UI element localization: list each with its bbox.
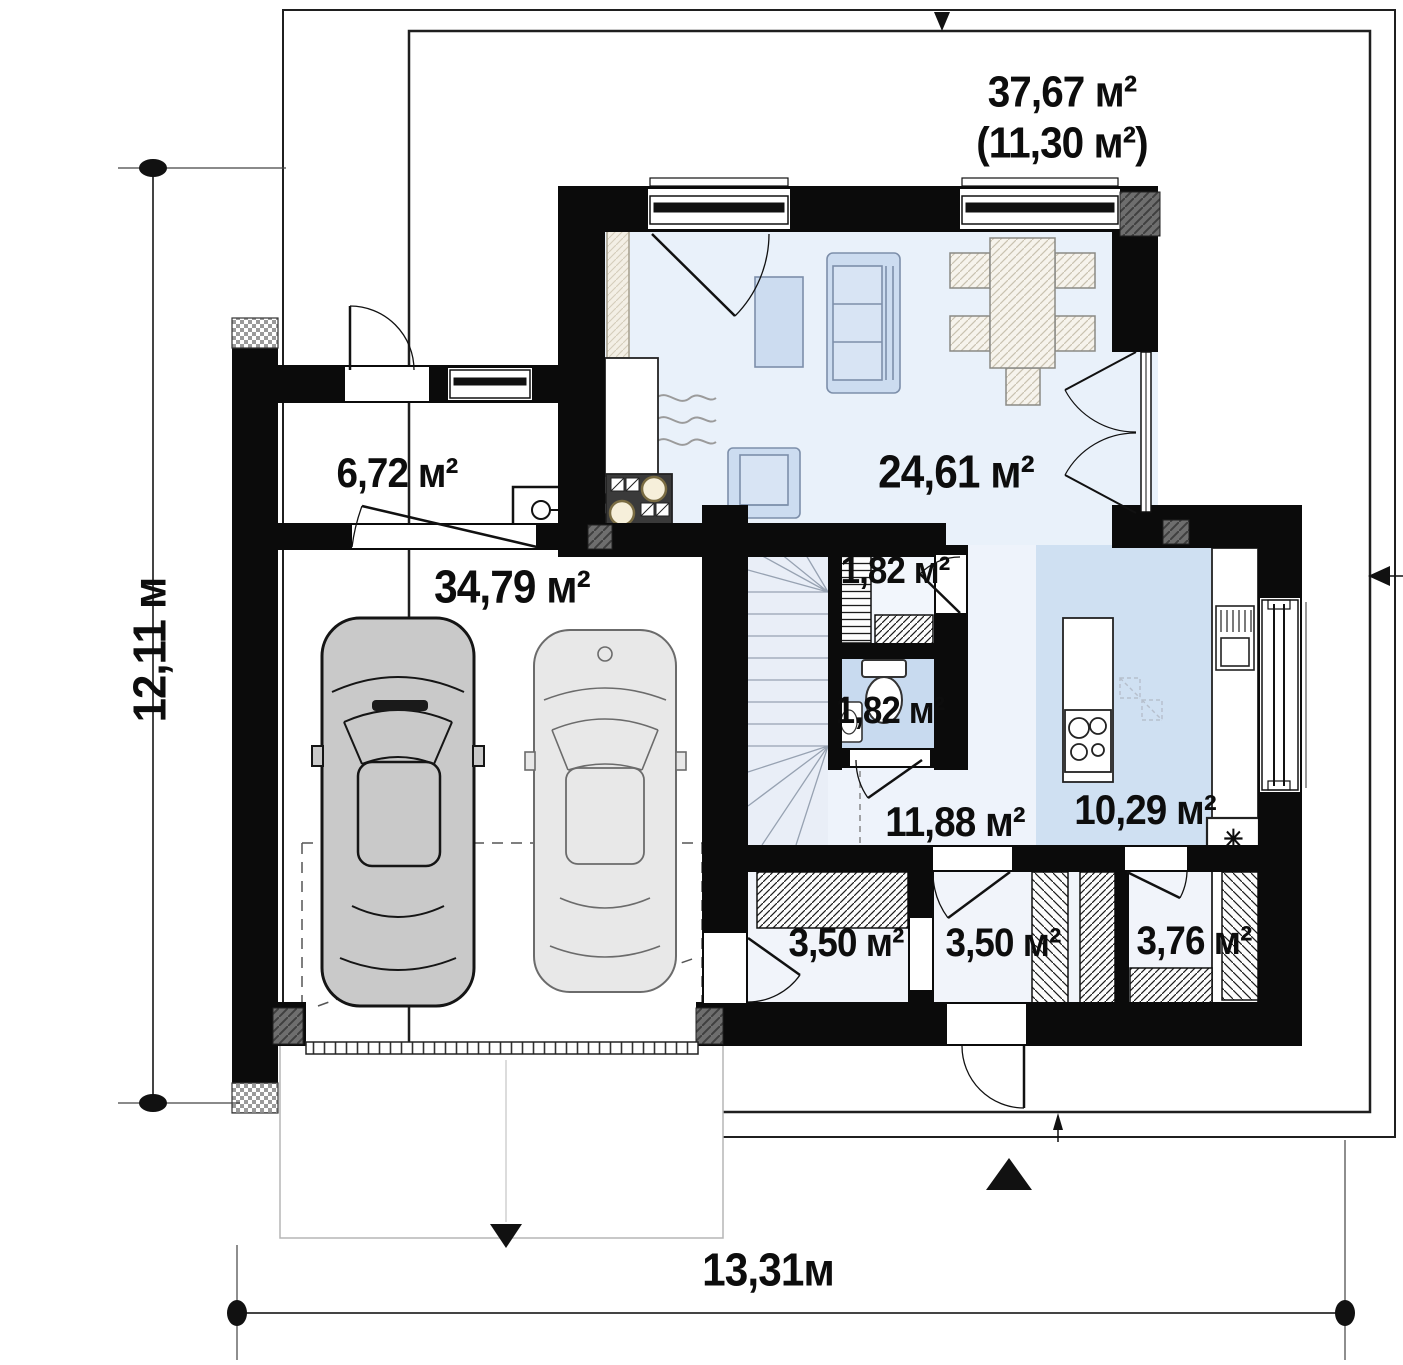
room-label-storage: 3,76 м² [1137, 918, 1252, 964]
entrance-arrow-icon [986, 1158, 1032, 1190]
tv-wall [607, 228, 629, 358]
terrace-area-value: 37,67 м² [976, 67, 1148, 118]
room-label-wardrobe: 3,50 м² [789, 920, 904, 966]
room-label-hall: 11,88 м² [885, 798, 1024, 846]
toilet-tank [862, 660, 906, 677]
driveway [280, 1045, 723, 1248]
french-door [1141, 352, 1151, 512]
coffee-table [755, 277, 803, 367]
room-label-closet: 1,82 м² [841, 550, 950, 594]
garage-door [306, 1042, 698, 1054]
sofa [827, 253, 900, 393]
car-2 [525, 630, 686, 992]
kitchen-island [1063, 618, 1113, 782]
floor-plan-page: 37,67 м² (11,30 м²) 24,61 м² 6,72 м² 34,… [0, 0, 1403, 1365]
sink [1216, 606, 1254, 670]
burner-icon [610, 501, 634, 525]
dimension-label-height: 12,11 м [124, 578, 177, 723]
room-label-kitchen: 10,29 м² [1074, 786, 1216, 834]
dining-table [990, 238, 1055, 368]
room-label-utility: 6,72 м² [337, 449, 458, 497]
room-label-garage: 34,79 м² [434, 561, 590, 614]
dimension-label-width: 13,31м [702, 1244, 834, 1297]
terrace-area-secondary: (11,30 м²) [976, 118, 1148, 169]
fridge-symbol-icon: ✳ [1223, 825, 1242, 855]
burner-icon [642, 477, 666, 501]
terrace-area-label: 37,67 м² (11,30 м²) [976, 67, 1148, 168]
car-1 [312, 618, 484, 1006]
room-label-wc: 1,82 м² [836, 690, 945, 734]
room-label-living-room: 24,61 м² [878, 446, 1034, 499]
floor-plan-drawing [0, 0, 1403, 1365]
room-label-vestibule: 3,50 м² [946, 920, 1061, 966]
